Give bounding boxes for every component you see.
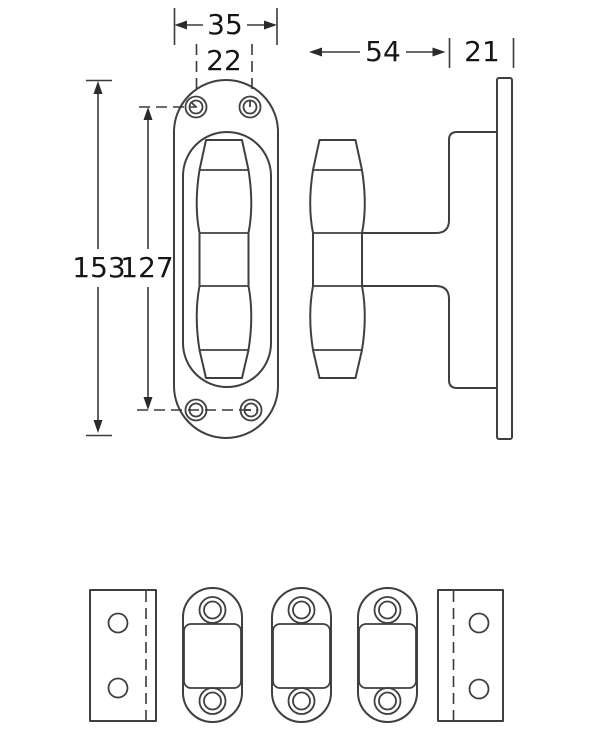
dim-label-54: 54 (365, 35, 401, 68)
spacer-part-2 (272, 588, 331, 722)
dimension-rosette-width-35: 35 (175, 8, 278, 45)
spacer-part-1 (183, 588, 242, 722)
dimension-depth-21: 21 (464, 35, 513, 68)
screw-hole-top-right (240, 97, 261, 118)
dim-label-127: 127 (120, 251, 173, 284)
drawing-svg: 35 22 54 21 153 127 (0, 0, 600, 756)
dim-label-22: 22 (206, 44, 242, 77)
dim-label-21: 21 (464, 35, 500, 68)
front-view-rosette (174, 80, 278, 438)
dimension-height-153: 153 (72, 81, 125, 436)
side-view-handle (310, 78, 512, 439)
handle-grip-side (310, 140, 365, 378)
handle-grip-front (197, 140, 252, 378)
technical-drawing-canvas: 35 22 54 21 153 127 (0, 0, 600, 756)
dim-label-35: 35 (207, 8, 243, 41)
backplate-edge (497, 78, 512, 439)
mounting-plate-right (438, 590, 503, 721)
boss-and-stem (362, 132, 497, 388)
dim-label-153: 153 (72, 251, 125, 284)
mounting-plate-left (90, 590, 156, 721)
dimension-projection-54: 54 (309, 35, 450, 68)
spacer-part-3 (358, 588, 417, 722)
bottom-parts-row (90, 588, 503, 722)
